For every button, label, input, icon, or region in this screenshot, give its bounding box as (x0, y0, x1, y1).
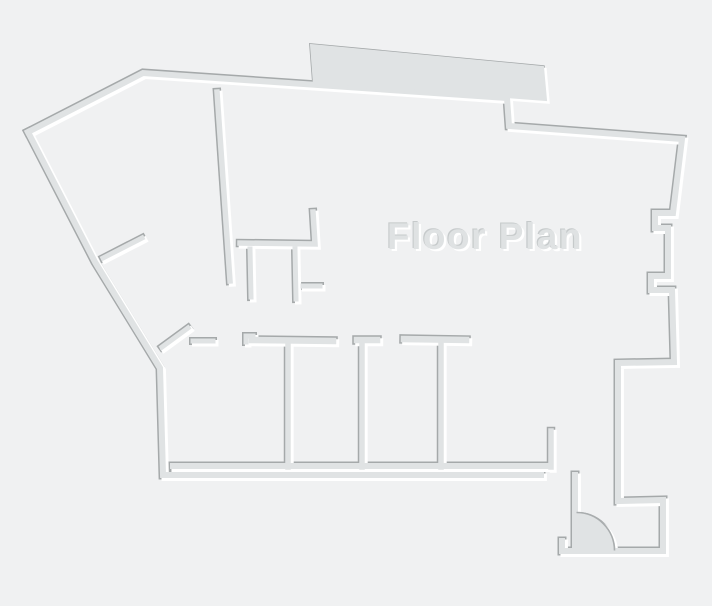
floor-plan-svg: Floor PlanFloor PlanFloor Plan (0, 0, 712, 606)
wall-mid-stub-a (250, 249, 251, 297)
wall-room3-top-bar (404, 339, 466, 340)
wall-room1-top-bar (252, 340, 333, 341)
wall-mid-stub-b (295, 249, 296, 299)
plan-title: Floor Plan (387, 216, 583, 257)
floor-plan-canvas: Floor PlanFloor PlanFloor Plan (0, 0, 712, 606)
